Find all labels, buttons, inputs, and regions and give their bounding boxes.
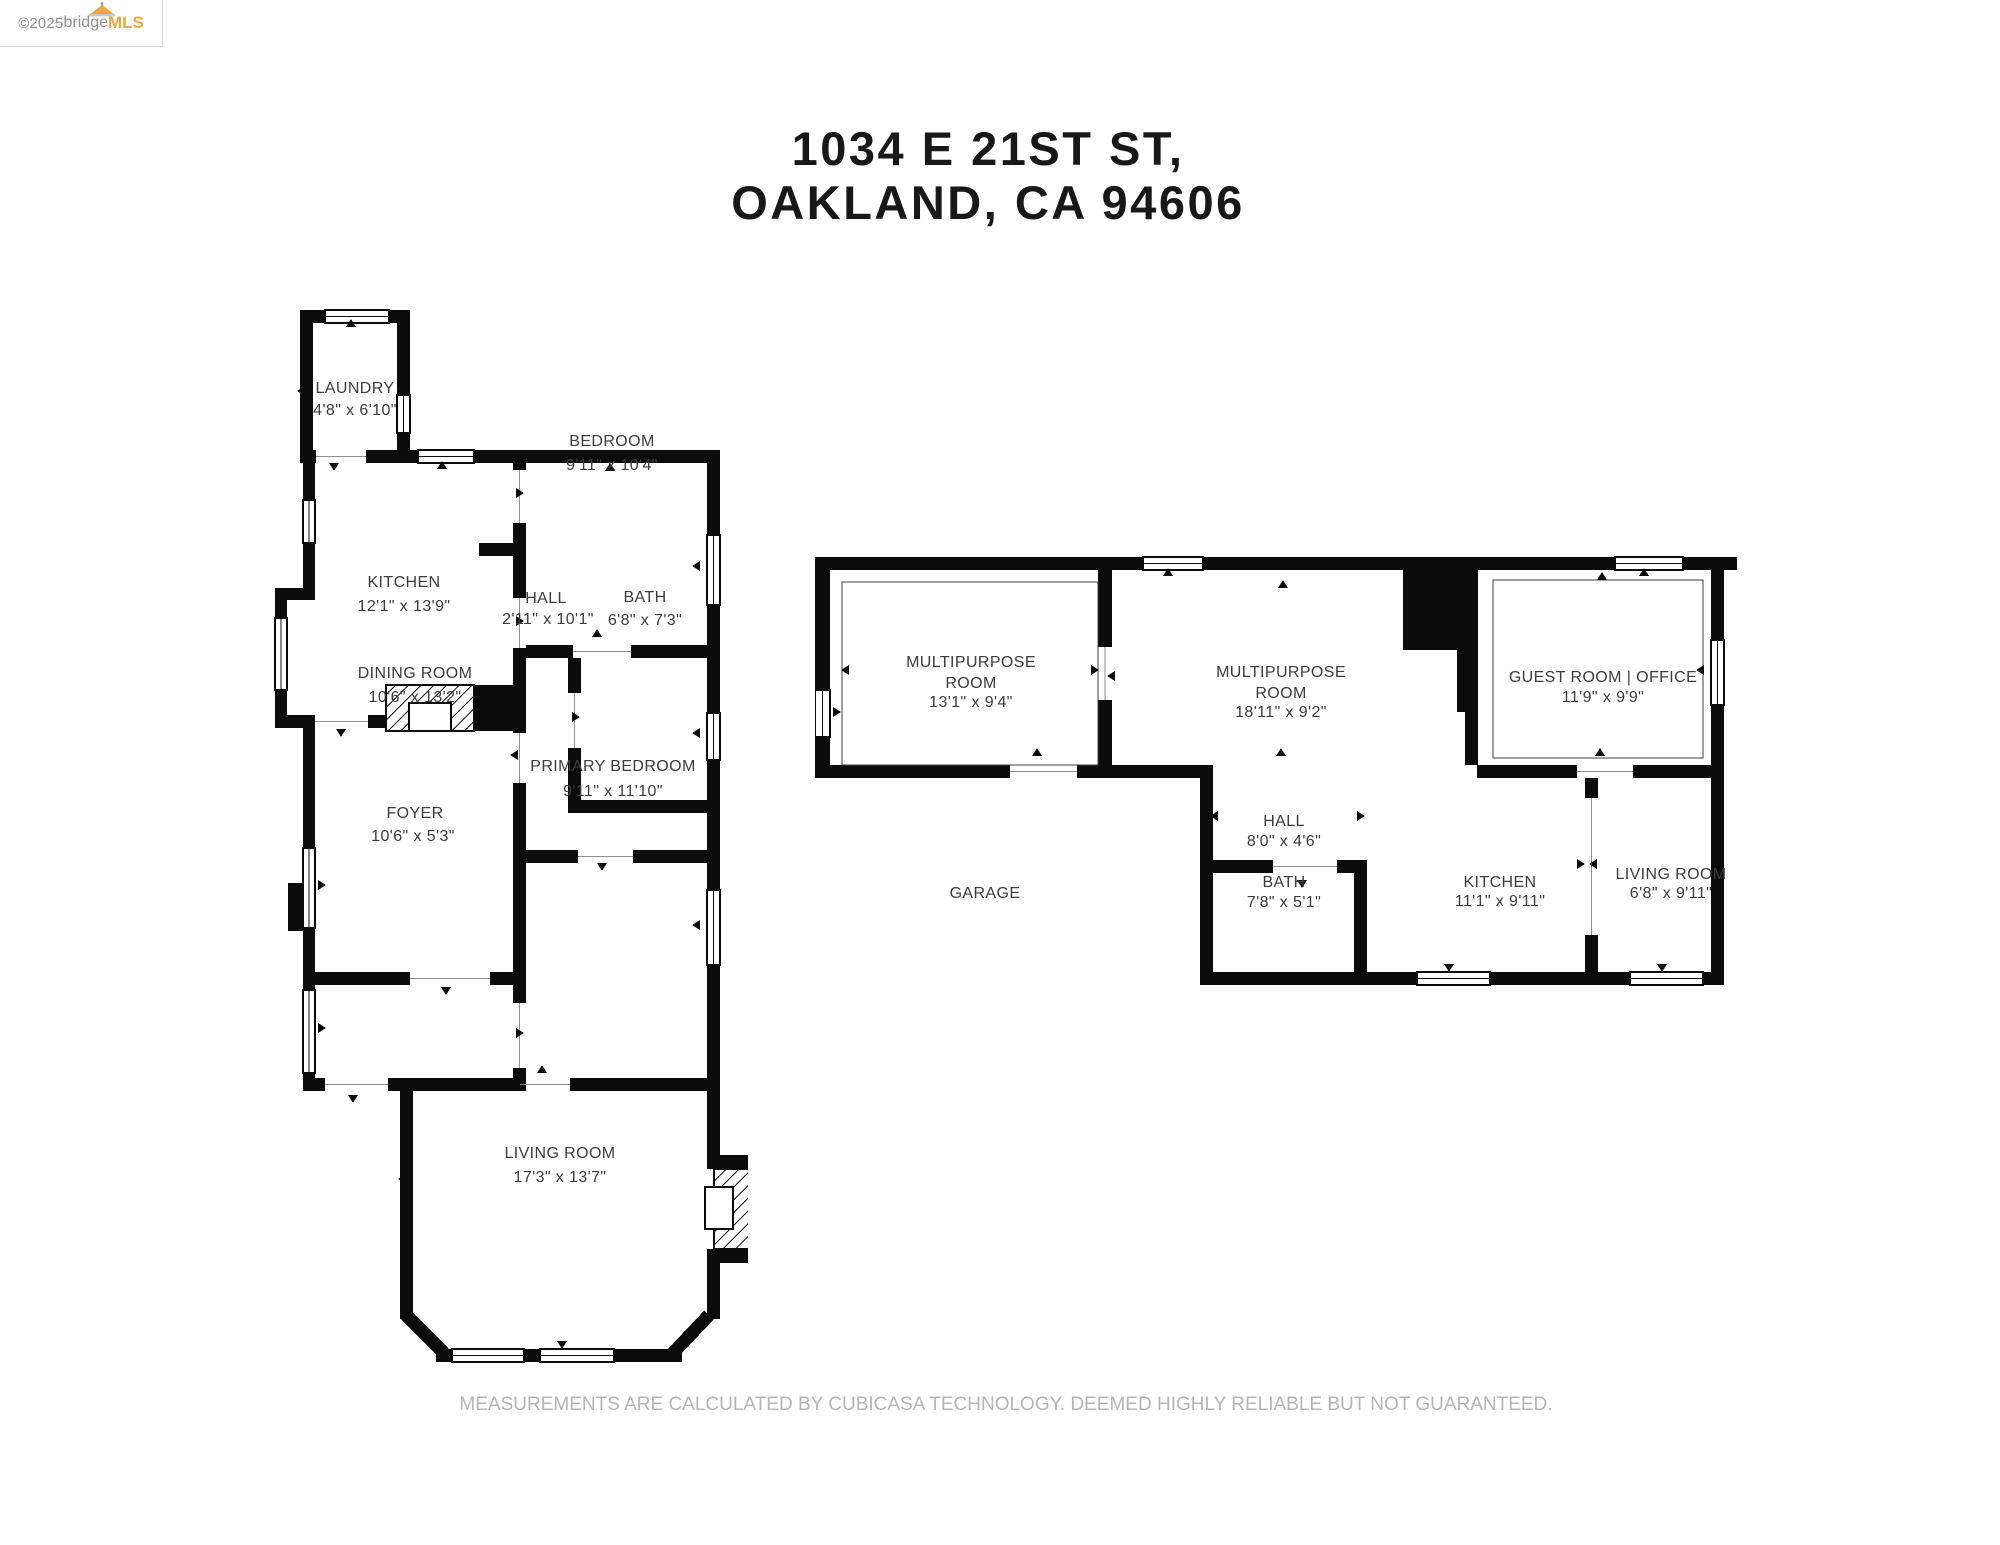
room-label: LAUNDRY	[316, 380, 395, 397]
room-label: GUEST ROOM | OFFICE	[1509, 669, 1697, 686]
watermark-copyright: ©2025	[18, 15, 63, 32]
fireplace-living-room	[705, 1169, 748, 1249]
address-title: 1034 E 21ST ST, OAKLAND, CA 94606	[0, 122, 1976, 230]
room-dims: 17'3" x 13'7"	[514, 1169, 607, 1186]
room-dims: 11'9" x 9'9"	[1562, 689, 1644, 706]
room-label: HALL	[1263, 813, 1305, 830]
room-dims: 18'11" x 9'2"	[1235, 704, 1327, 721]
room-label: KITCHEN	[1463, 874, 1536, 891]
address-line-2: OAKLAND, CA 94606	[0, 176, 1976, 230]
room-label: MULTIPURPOSE	[906, 654, 1036, 671]
room-label: MULTIPURPOSE	[1216, 664, 1346, 681]
room-dims: 8'0" x 4'6"	[1247, 833, 1321, 850]
room-label: ROOM	[1255, 685, 1306, 702]
room-dims: 2'11" x 10'1"	[502, 611, 594, 628]
address-line-1: 1034 E 21ST ST,	[0, 122, 1976, 176]
room-label: BEDROOM	[569, 433, 654, 450]
room-label: ROOM	[945, 675, 996, 692]
room-dims: 6'8" x 9'11"	[1630, 885, 1712, 902]
room-label: BATH	[1262, 874, 1305, 891]
room-dims: 4'8" x 6'10"	[313, 402, 397, 419]
room-labels: MULTIPURPOSE ROOM 13'1" x 9'4" MULTIPURP…	[906, 654, 1726, 911]
room-label: HALL	[525, 590, 567, 607]
room-dims: 11'1" x 9'11"	[1455, 893, 1546, 910]
rear-unit-floorplan: MULTIPURPOSE ROOM 13'1" x 9'4" MULTIPURP…	[815, 550, 1750, 995]
room-labels: LAUNDRY 4'8" x 6'10" KITCHEN 12'1" x 13'…	[313, 380, 696, 1186]
room-label: LIVING ROOM	[1615, 866, 1726, 883]
room-label: FOYER	[386, 805, 443, 822]
disclaimer-text: MEASUREMENTS ARE CALCULATED BY CUBICASA …	[0, 1394, 2000, 1416]
mls-watermark: ©2025 bridgeMLS	[0, 0, 163, 47]
room-dims: 10'6" x 13'2"	[369, 689, 462, 706]
room-label: BATH	[623, 589, 666, 606]
room-dims: 9'11" x 10'4"	[566, 457, 658, 474]
floorplan-page: ©2025 bridgeMLS 1034 E 21ST ST, OAKLAND,…	[0, 0, 2000, 1545]
room-dims: 10'6" x 5'3"	[371, 828, 455, 845]
watermark-brand-orange: MLS	[108, 13, 144, 33]
room-label: GARAGE	[950, 885, 1021, 902]
room-dims: 12'1" x 13'9"	[358, 598, 451, 615]
door-thresholds	[1010, 647, 1633, 935]
room-label: DINING ROOM	[358, 665, 473, 682]
walls-layer	[275, 310, 748, 1362]
main-house-floorplan: LAUNDRY 4'8" x 6'10" KITCHEN 12'1" x 13'…	[268, 303, 748, 1365]
room-label: KITCHEN	[367, 574, 440, 591]
room-dims: 13'1" x 9'4"	[929, 694, 1013, 711]
room-label: PRIMARY BEDROOM	[530, 758, 695, 775]
room-dims: 7'8" x 5'1"	[1247, 894, 1321, 911]
room-label: LIVING ROOM	[504, 1145, 615, 1162]
room-dims: 6'8" x 7'3"	[608, 612, 682, 629]
room-dims: 9'11" x 11'10"	[563, 783, 663, 800]
